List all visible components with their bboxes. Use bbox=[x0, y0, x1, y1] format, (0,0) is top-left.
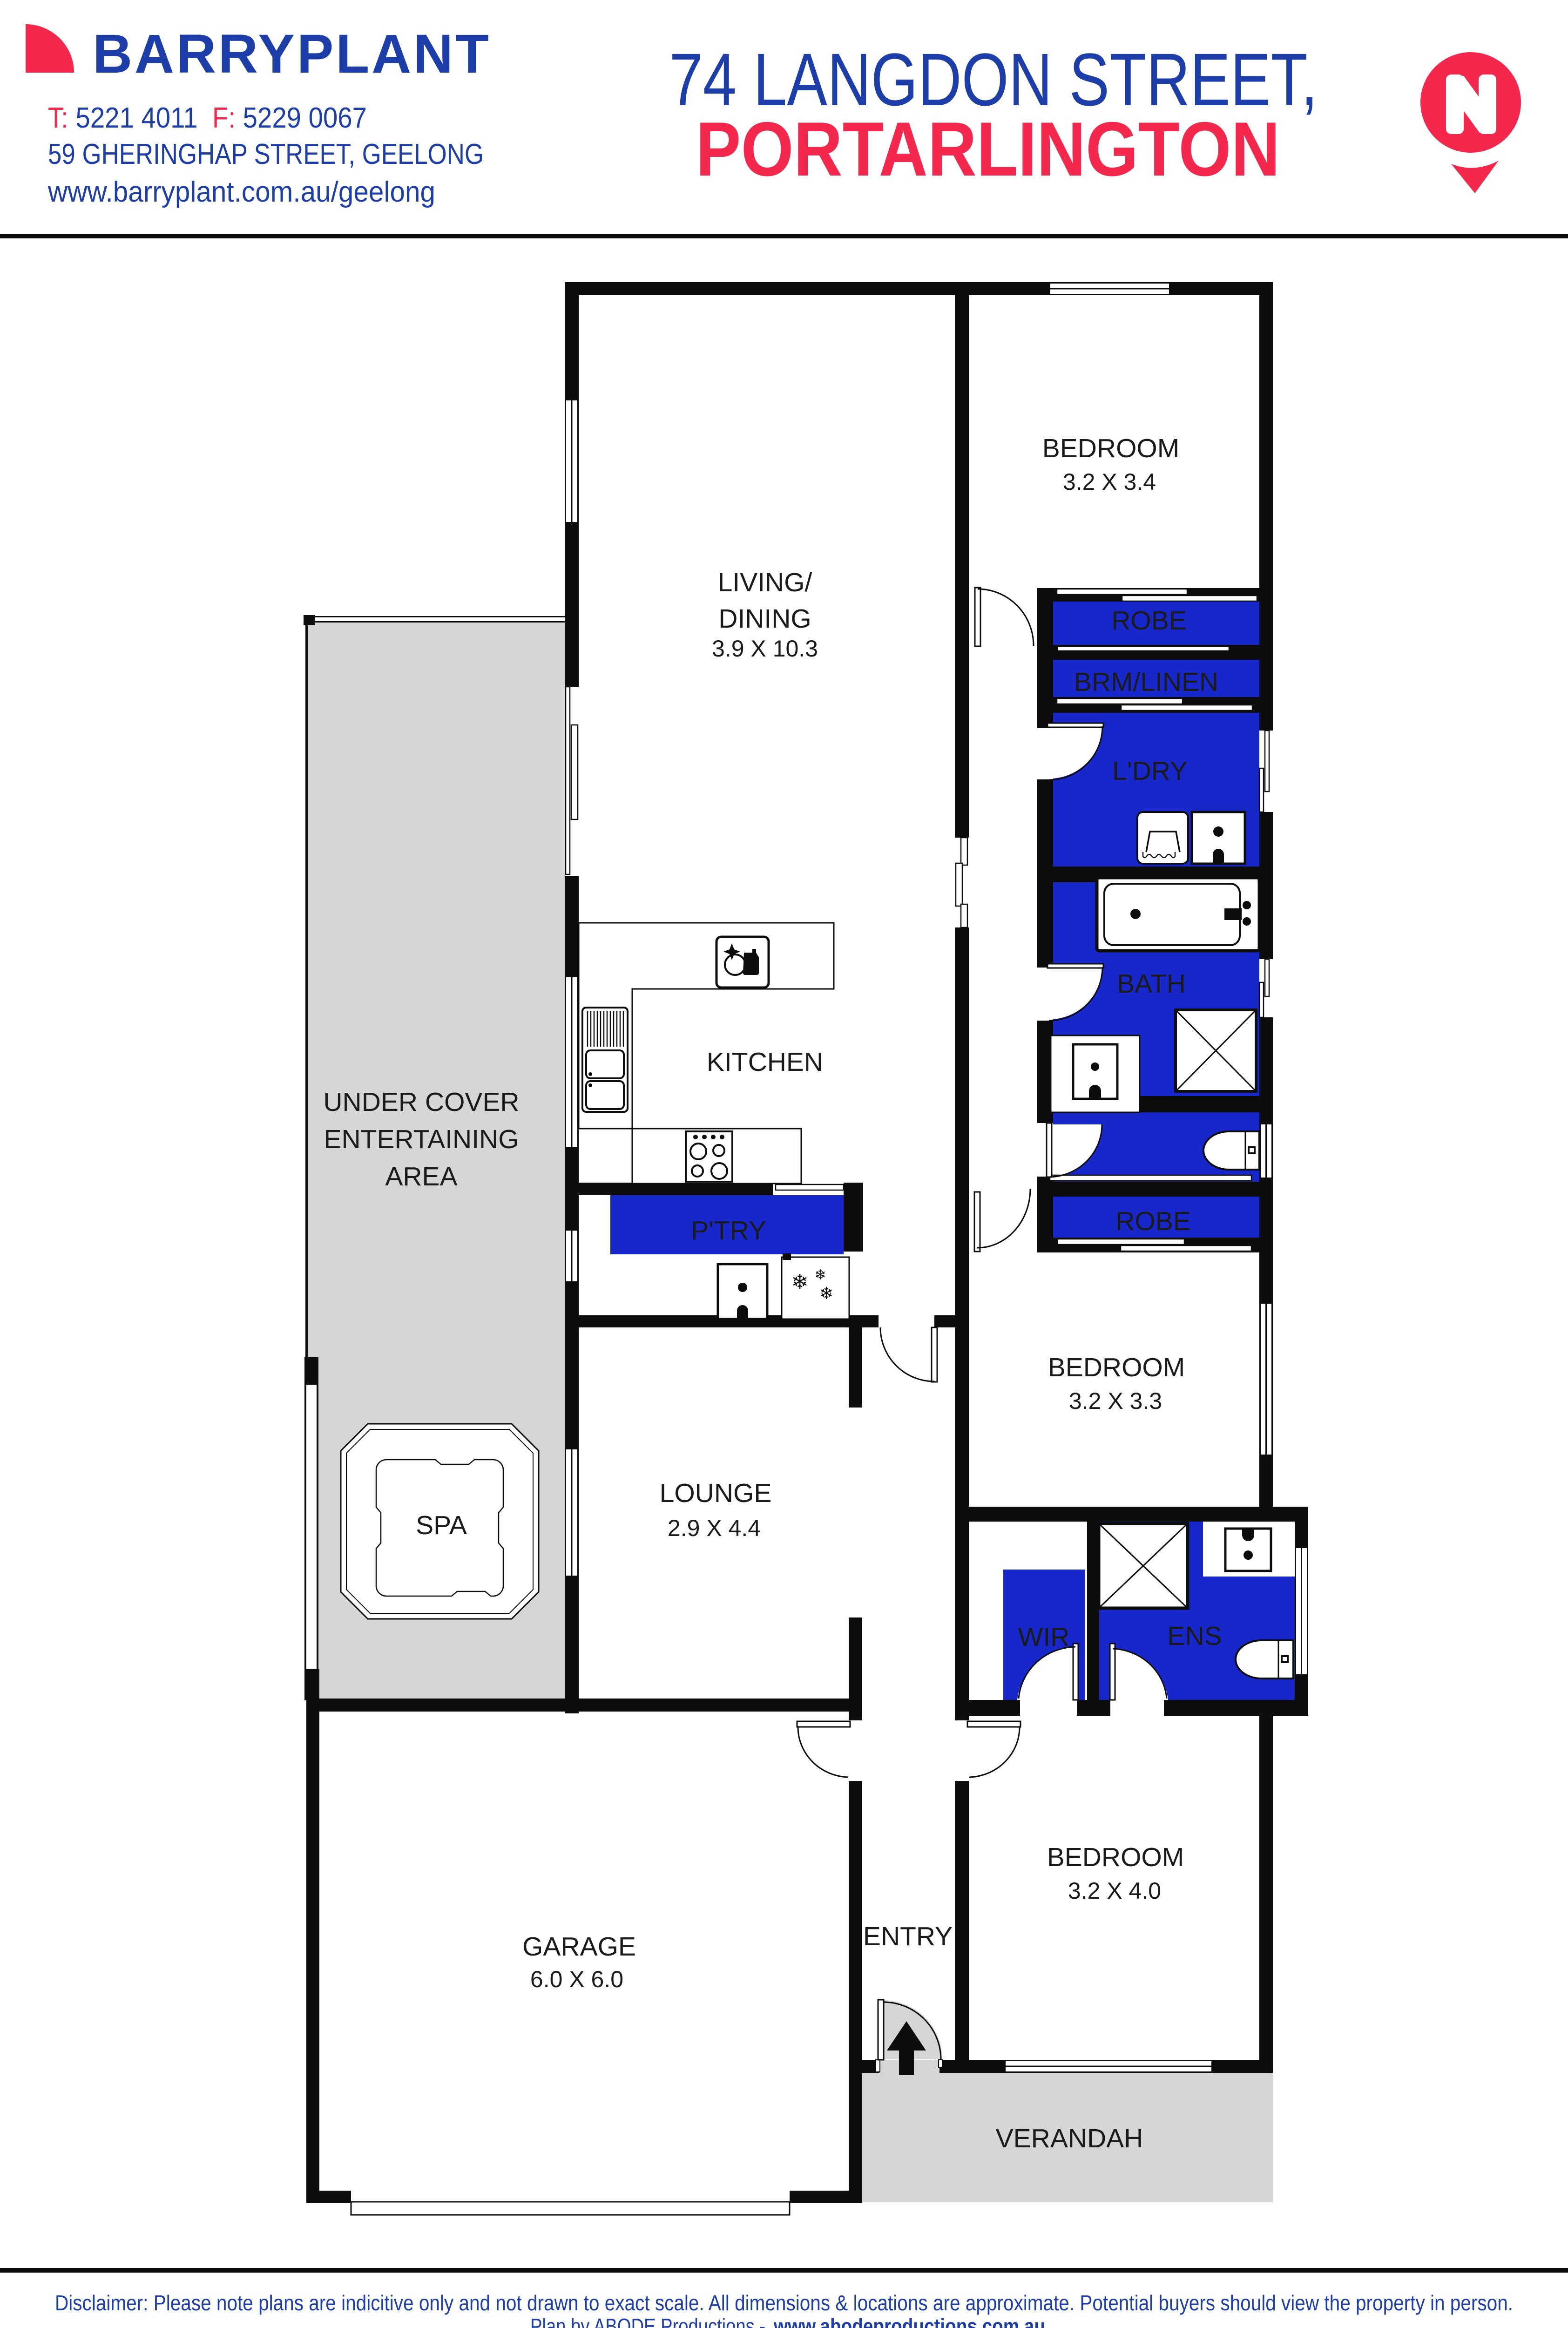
svg-text:WIR: WIR bbox=[1018, 1622, 1070, 1652]
svg-text:ENTERTAINING: ENTERTAINING bbox=[324, 1124, 519, 1154]
svg-text:BRM/LINEN: BRM/LINEN bbox=[1074, 667, 1218, 697]
svg-text:Plan by ABODE Productions -: Plan by ABODE Productions - bbox=[530, 2314, 765, 2328]
svg-text:BATH: BATH bbox=[1117, 969, 1186, 999]
svg-text:3.2 X 4.0: 3.2 X 4.0 bbox=[1068, 1878, 1161, 1904]
svg-text:3.9 X 10.3: 3.9 X 10.3 bbox=[712, 636, 818, 662]
svg-text:BEDROOM: BEDROOM bbox=[1042, 433, 1180, 463]
svg-text:3.2 X 3.4: 3.2 X 3.4 bbox=[1063, 469, 1156, 495]
svg-text:BEDROOM: BEDROOM bbox=[1047, 1842, 1184, 1872]
svg-text:❄: ❄ bbox=[819, 1284, 833, 1303]
svg-text:www.abodeproductions.com.au: www.abodeproductions.com.au bbox=[773, 2314, 1045, 2328]
svg-text:Disclaimer: Please note plans: Disclaimer: Please note plans are indici… bbox=[55, 2291, 1513, 2315]
svg-text:2.9 X 4.4: 2.9 X 4.4 bbox=[668, 1515, 761, 1541]
svg-text:ENTRY: ENTRY bbox=[863, 1922, 953, 1951]
svg-text:LOUNGE: LOUNGE bbox=[660, 1478, 772, 1508]
svg-text:ENS: ENS bbox=[1167, 1621, 1222, 1651]
svg-text:ROBE: ROBE bbox=[1111, 606, 1187, 636]
svg-text:T: 5221 4011 F: 5229 0067: T: 5221 4011 F: 5229 0067 bbox=[48, 102, 367, 134]
svg-text:59 GHERINGHAP STREET, GEELONG: 59 GHERINGHAP STREET, GEELONG bbox=[48, 138, 484, 170]
svg-text:3.2 X 3.3: 3.2 X 3.3 bbox=[1069, 1388, 1162, 1414]
svg-text:P'TRY: P'TRY bbox=[691, 1216, 766, 1245]
svg-text:AREA: AREA bbox=[385, 1162, 457, 1191]
svg-text:DINING: DINING bbox=[718, 604, 811, 634]
svg-text:www.barryplant.com.au/geelong: www.barryplant.com.au/geelong bbox=[47, 176, 435, 208]
svg-text:❄: ❄ bbox=[791, 1271, 809, 1293]
svg-text:PORTARLINGTON: PORTARLINGTON bbox=[696, 106, 1280, 192]
svg-text:SPA: SPA bbox=[416, 1510, 467, 1540]
svg-text:ROBE: ROBE bbox=[1115, 1206, 1191, 1236]
svg-text:6.0 X 6.0: 6.0 X 6.0 bbox=[530, 1966, 623, 1992]
svg-text:KITCHEN: KITCHEN bbox=[707, 1047, 823, 1077]
svg-text:GARAGE: GARAGE bbox=[522, 1932, 636, 1962]
svg-text:BEDROOM: BEDROOM bbox=[1048, 1353, 1185, 1382]
svg-text:UNDER COVER: UNDER COVER bbox=[323, 1087, 519, 1117]
svg-text:VERANDAH: VERANDAH bbox=[996, 2124, 1143, 2153]
svg-text:❄: ❄ bbox=[814, 1267, 826, 1283]
svg-text:L'DRY: L'DRY bbox=[1112, 756, 1188, 786]
svg-text:BARRYPLANT: BARRYPLANT bbox=[93, 23, 489, 85]
svg-text:LIVING/: LIVING/ bbox=[718, 568, 812, 597]
